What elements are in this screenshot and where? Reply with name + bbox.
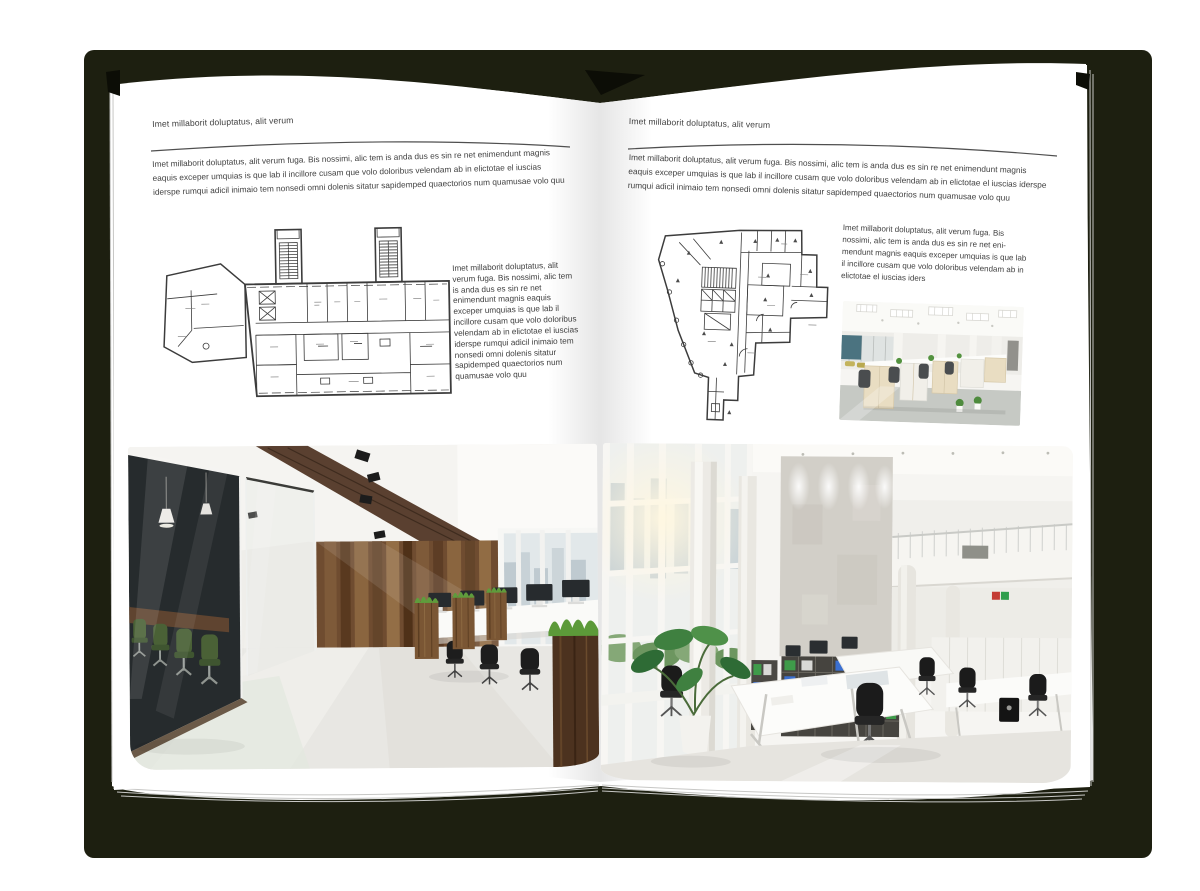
plant-pot — [679, 716, 711, 755]
office-photo-right — [601, 443, 1073, 783]
floorplan-left-drawing — [156, 224, 455, 419]
level-markers — [671, 234, 815, 417]
magazine-spread-mockup: Imet millaborit doluptatus, alit verum I… — [0, 0, 1200, 891]
glass-partition — [240, 478, 315, 677]
floorplan-right-drawing — [635, 219, 844, 432]
office-photo-small-art — [839, 301, 1024, 426]
concrete-wall — [780, 456, 895, 657]
foreground-planter — [548, 619, 599, 767]
floorplan-right — [635, 219, 844, 432]
media-wall — [841, 335, 862, 360]
floorplan-left — [156, 224, 455, 419]
monitor — [810, 640, 828, 653]
left-sidebar-paragraph: Imet millaborit doluptatus, alit verum f… — [452, 260, 581, 383]
window-wall — [601, 443, 753, 781]
office-photo-small — [839, 301, 1024, 426]
vent-grille — [962, 546, 988, 559]
mezzanine — [892, 500, 1073, 596]
office-photo-left — [128, 444, 599, 770]
right-sidebar-paragraph: Imet millaborit doluptatus, alit verum f… — [841, 222, 1033, 289]
door — [1007, 340, 1019, 370]
office-photo-left-art — [128, 444, 599, 770]
lounge-sofa — [845, 361, 855, 366]
office-photo-right-art — [601, 443, 1073, 783]
safety-sign — [992, 592, 1000, 600]
